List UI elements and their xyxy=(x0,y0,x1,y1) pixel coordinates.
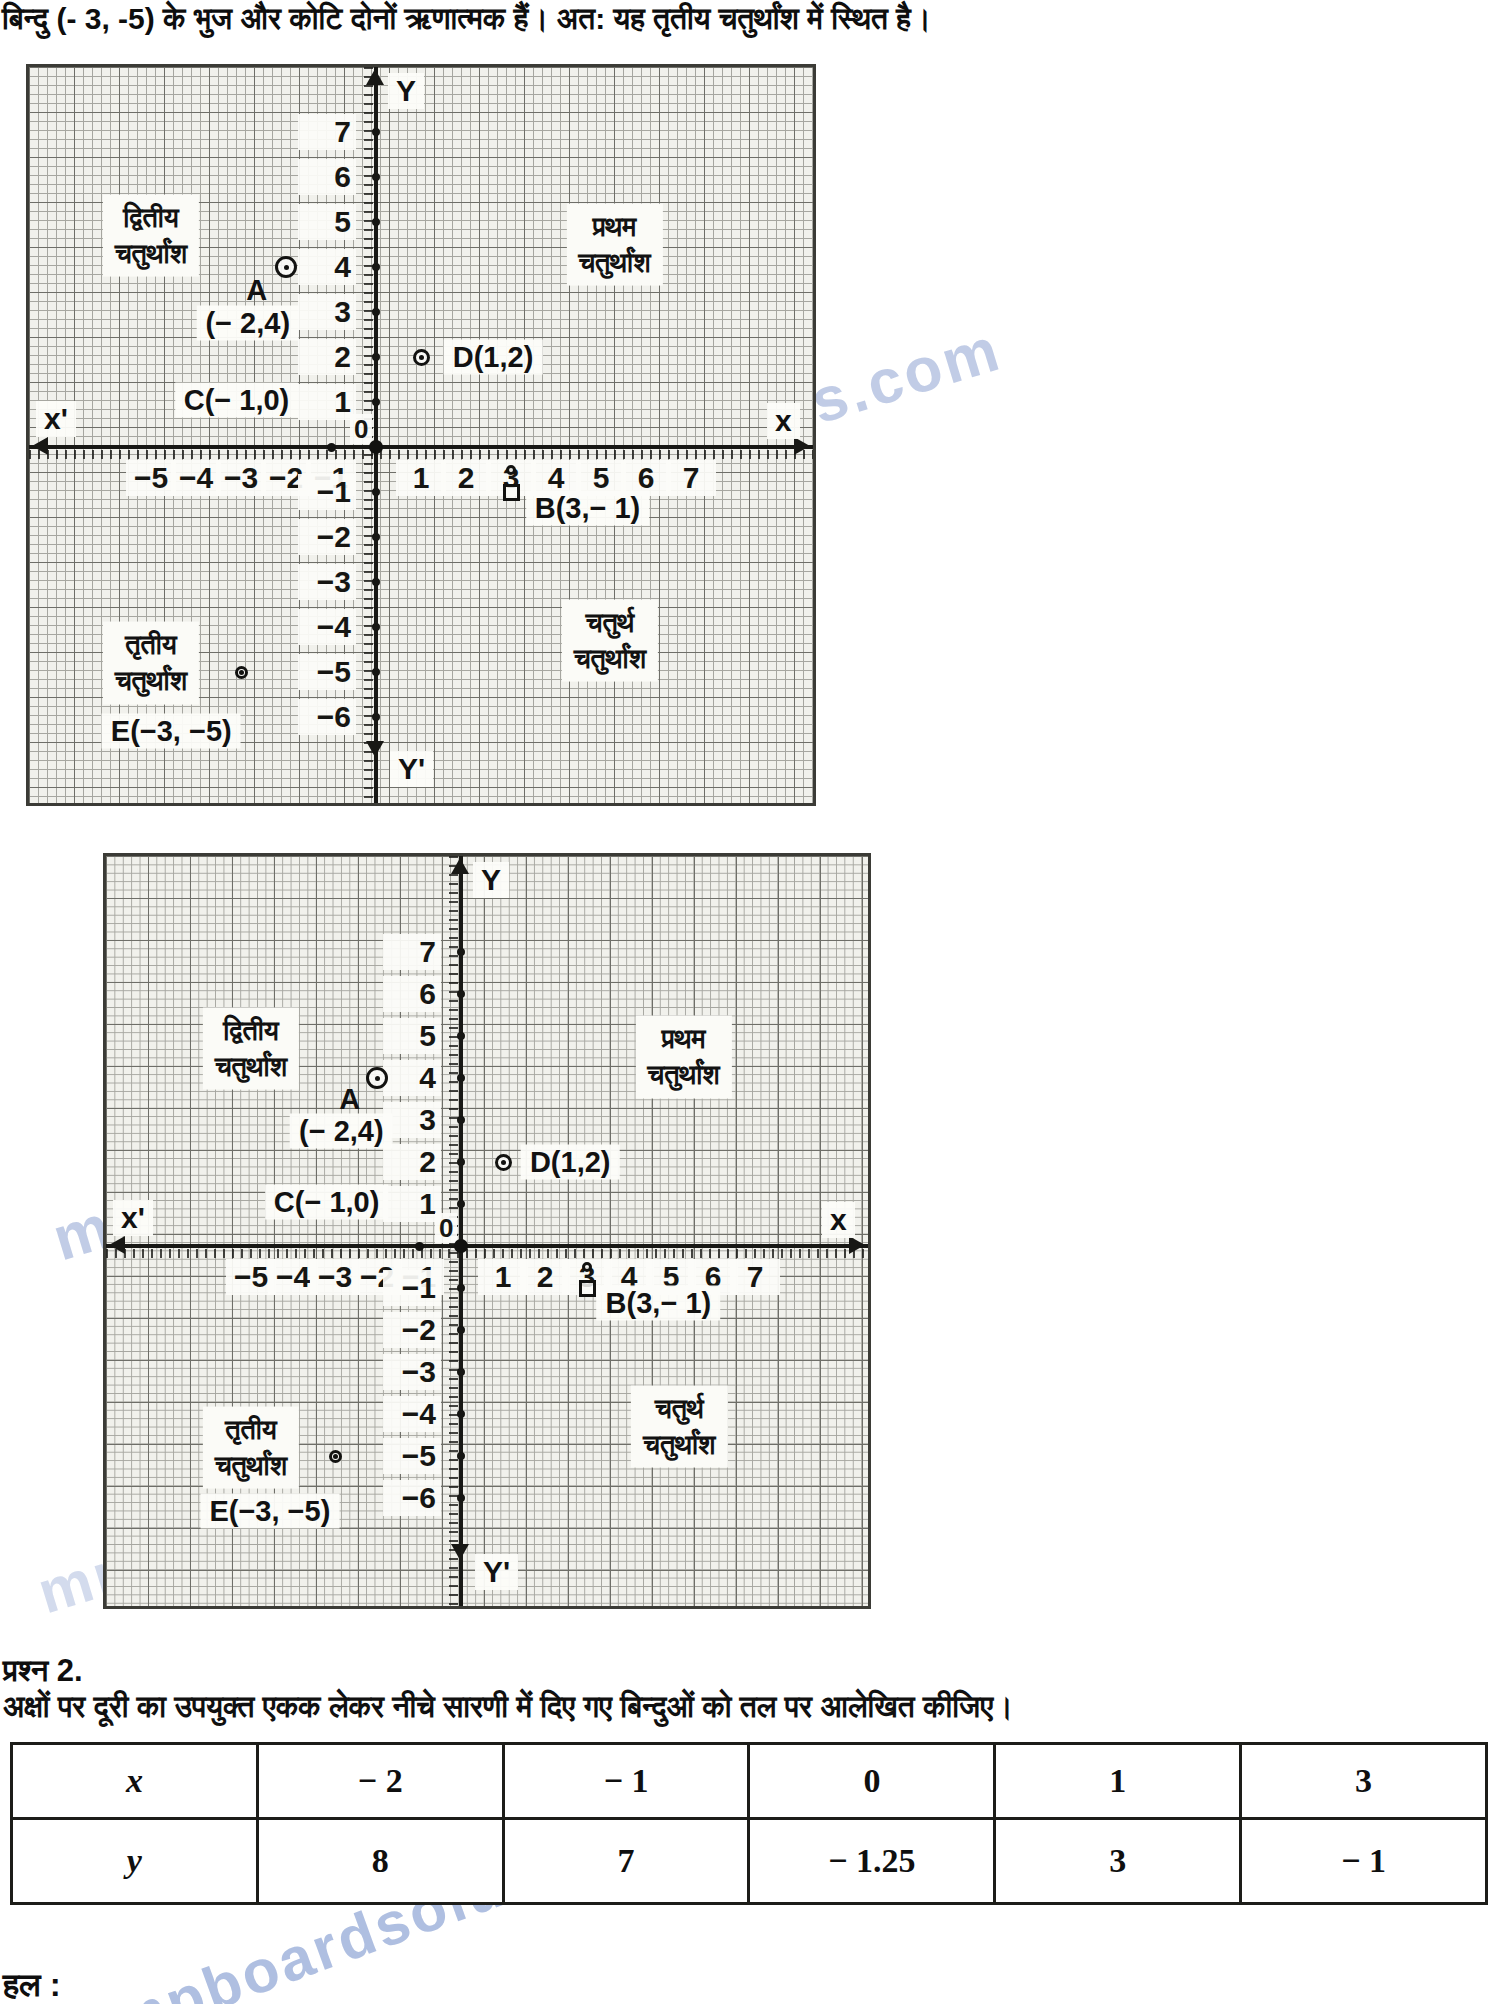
quadrant-label-line1: द्वितीय xyxy=(215,1012,287,1048)
solution-label: हल : xyxy=(3,1966,61,2004)
quadrant-label: चतुर्थचतुर्थांश xyxy=(562,599,658,682)
y-tick-label: 4 xyxy=(298,249,356,285)
quadrant-label-line1: प्रथम xyxy=(647,1021,719,1057)
y-tick-label: 2 xyxy=(298,339,356,375)
quadrant-label: तृतीयचतुर्थांश xyxy=(103,622,199,705)
point-C-marker xyxy=(327,443,336,452)
y-tick-label: 7 xyxy=(383,934,441,970)
x-axis-line xyxy=(106,1244,868,1248)
row-header-x: x xyxy=(12,1744,258,1819)
y-tick-dot xyxy=(457,1032,465,1040)
quadrant-label: तृतीयचतुर्थांश xyxy=(203,1406,299,1489)
y-tick-dot xyxy=(457,1452,465,1460)
y-tick-label: −4 xyxy=(298,609,356,645)
table-row-x: x− 2− 1013 xyxy=(12,1744,1487,1819)
x-tick-label: 7 xyxy=(666,460,716,496)
y-tick-dot xyxy=(372,128,380,136)
quadrant-label-line2: चतुर्थांश xyxy=(647,1057,719,1093)
point-label: E(−3, −5) xyxy=(102,713,241,748)
y-tick-dot xyxy=(457,1284,465,1292)
x-tick-label: −3 xyxy=(216,460,266,496)
y-axis-arrow-bottom xyxy=(451,1544,469,1560)
y-tick-label: −5 xyxy=(298,654,356,690)
point-label: D(1,2) xyxy=(444,340,543,375)
point-label: C(− 1,0) xyxy=(175,382,299,417)
point-A-marker xyxy=(275,256,297,278)
marker-center-dot xyxy=(239,670,244,675)
point-E-marker xyxy=(235,666,248,679)
y-tick-label: −1 xyxy=(383,1270,441,1306)
row-header-y: y xyxy=(12,1819,258,1904)
quadrant-label-line2: चतुर्थांश xyxy=(215,1049,287,1085)
x-axis-arrow-right xyxy=(794,437,810,455)
table-cell: 3 xyxy=(995,1819,1241,1904)
page: { "page": { "intro_line": "बिन्दु (- 3, … xyxy=(0,0,1499,2004)
y-tick-label-zero: 0 xyxy=(350,414,372,444)
quadrant-label-line2: चतुर्थांश xyxy=(115,663,187,699)
point-B-marker xyxy=(503,484,520,501)
table-cell: 7 xyxy=(503,1819,749,1904)
point-B-marker xyxy=(579,1280,596,1297)
point-label: E(−3, −5) xyxy=(200,1493,339,1528)
y-tick-label: 4 xyxy=(383,1060,441,1096)
intro-text: बिन्दु (- 3, -5) के भुज और कोटि दोनों ऋण… xyxy=(2,2,1182,37)
marker-center-dot xyxy=(375,1076,380,1081)
quadrant-label: प्रथमचतुर्थांश xyxy=(635,1016,731,1099)
y-axis-arrow-top xyxy=(451,858,469,874)
y-tick-dot xyxy=(372,533,380,541)
y-axis-label-top: Y xyxy=(473,862,509,898)
y-tick-dot xyxy=(372,668,380,676)
y-axis-label-top: Y xyxy=(388,73,424,109)
y-tick-dot xyxy=(372,218,380,226)
quadrant-label-line2: चतुर्थांश xyxy=(115,236,187,272)
y-tick-label: −3 xyxy=(383,1354,441,1390)
x-axis-arrow-left xyxy=(32,437,48,455)
point-label: A xyxy=(339,1083,360,1116)
y-tick-label: −4 xyxy=(383,1396,441,1432)
y-tick-dot xyxy=(457,990,465,998)
point-D-marker xyxy=(413,349,430,366)
quadrant-label: चतुर्थचतुर्थांश xyxy=(631,1385,727,1468)
y-tick-label: −1 xyxy=(298,474,356,510)
point-label: B(3,− 1) xyxy=(597,1285,721,1320)
y-tick-label: 5 xyxy=(298,204,356,240)
table-cell: − 1 xyxy=(503,1744,749,1819)
points-table-body: x− 2− 1013y87− 1.253− 1 xyxy=(12,1744,1487,1904)
quadrant-label: प्रथमचतुर्थांश xyxy=(566,203,662,286)
y-tick-label: 6 xyxy=(383,976,441,1012)
quadrant-label-line1: द्वितीय xyxy=(115,199,187,235)
y-tick-dot xyxy=(457,1410,465,1418)
x-axis-label-left: x' xyxy=(113,1200,153,1236)
y-tick-label: −3 xyxy=(298,564,356,600)
x-axis-arrow-right xyxy=(849,1236,865,1254)
quadrant-label-line1: चतुर्थ xyxy=(574,604,646,640)
y-tick-label: −6 xyxy=(298,699,356,735)
y-tick-label-zero: 0 xyxy=(435,1213,457,1243)
table-row-y: y87− 1.253− 1 xyxy=(12,1819,1487,1904)
marker-center-dot xyxy=(501,1160,506,1165)
y-tick-label: −5 xyxy=(383,1438,441,1474)
y-tick-dot xyxy=(372,713,380,721)
quadrant-label-line1: चतुर्थ xyxy=(643,1390,715,1426)
y-tick-dot xyxy=(457,1368,465,1376)
y-tick-dot xyxy=(372,623,380,631)
point-B-tick-marker xyxy=(506,465,516,475)
point-label: A xyxy=(246,273,267,306)
y-tick-label: −6 xyxy=(383,1480,441,1516)
point-O-marker xyxy=(454,1239,468,1253)
question-label: प्रश्न 2. xyxy=(3,1653,83,1689)
marker-center-dot xyxy=(333,1454,338,1459)
x-tick-label: 2 xyxy=(441,460,491,496)
point-A-marker xyxy=(366,1067,388,1089)
table-cell: 3 xyxy=(1241,1744,1487,1819)
y-axis-arrow-top xyxy=(366,69,384,85)
quadrant-label-line2: चतुर्थांश xyxy=(643,1427,715,1463)
y-tick-label: 2 xyxy=(383,1144,441,1180)
point-label: B(3,− 1) xyxy=(526,490,650,525)
question-text: अक्षों पर दूरी का उपयुक्त एकक लेकर नीचे … xyxy=(3,1690,1203,1725)
y-tick-dot xyxy=(372,263,380,271)
marker-center-dot xyxy=(284,265,289,270)
y-tick-dot xyxy=(372,173,380,181)
table-cell: 0 xyxy=(749,1744,995,1819)
x-axis-label-left: x' xyxy=(36,401,76,437)
quadrant-label-line1: तृतीय xyxy=(215,1411,287,1447)
y-tick-dot xyxy=(372,353,380,361)
quadrant-label: द्वितीयचतुर्थांश xyxy=(203,1007,299,1090)
point-C-marker xyxy=(415,1242,424,1251)
x-tick-label: −4 xyxy=(171,460,221,496)
x-axis-label-right: x xyxy=(767,403,800,439)
marker-center-dot xyxy=(419,355,424,360)
point-label: (− 2,4) xyxy=(196,306,299,341)
y-axis-label-bottom: Y' xyxy=(475,1554,518,1590)
x-tick-label: 7 xyxy=(730,1259,780,1295)
point-O-marker xyxy=(369,440,383,454)
y-tick-label: 1 xyxy=(298,384,356,420)
points-table: x− 2− 1013y87− 1.253− 1 xyxy=(10,1742,1488,1905)
y-tick-label: −2 xyxy=(383,1312,441,1348)
quadrant-label: द्वितीयचतुर्थांश xyxy=(103,194,199,277)
x-axis-minor-ticks xyxy=(29,450,813,459)
x-tick-label: −5 xyxy=(126,460,176,496)
table-cell: − 1.25 xyxy=(749,1819,995,1904)
quadrant-label-line1: तृतीय xyxy=(115,627,187,663)
y-tick-dot xyxy=(372,308,380,316)
x-axis-label-right: x xyxy=(822,1202,855,1238)
table-cell: 1 xyxy=(995,1744,1241,1819)
y-tick-dot xyxy=(457,1074,465,1082)
point-D-marker xyxy=(495,1154,512,1171)
x-axis-arrow-left xyxy=(109,1236,125,1254)
y-tick-label: 1 xyxy=(383,1186,441,1222)
table-cell: − 1 xyxy=(1241,1819,1487,1904)
x-axis-minor-ticks xyxy=(106,1249,868,1258)
coordinate-plane-figure-1: YY'x'x−5−4−3−2−1123456776543210−1−2−3−4−… xyxy=(26,64,816,806)
table-cell: − 2 xyxy=(257,1744,503,1819)
x-axis-line xyxy=(29,445,813,449)
y-tick-dot xyxy=(457,1200,465,1208)
table-cell: 8 xyxy=(257,1819,503,1904)
quadrant-label-line2: चतुर्थांश xyxy=(578,245,650,281)
quadrant-label-line2: चतुर्थांश xyxy=(574,641,646,677)
y-tick-label: 7 xyxy=(298,114,356,150)
quadrant-label-line2: चतुर्थांश xyxy=(215,1448,287,1484)
y-tick-dot xyxy=(457,1116,465,1124)
y-tick-dot xyxy=(372,578,380,586)
y-tick-dot xyxy=(457,1158,465,1166)
point-label: (− 2,4) xyxy=(290,1113,393,1148)
y-axis-label-bottom: Y' xyxy=(390,751,433,787)
y-tick-label: 6 xyxy=(298,159,356,195)
y-axis-arrow-bottom xyxy=(366,741,384,757)
y-tick-dot xyxy=(372,488,380,496)
point-B-tick-marker xyxy=(582,1262,592,1272)
y-tick-dot xyxy=(457,948,465,956)
y-tick-dot xyxy=(372,398,380,406)
y-tick-dot xyxy=(457,1326,465,1334)
point-label: C(− 1,0) xyxy=(265,1184,389,1219)
point-label: D(1,2) xyxy=(521,1145,620,1180)
x-tick-label: 1 xyxy=(396,460,446,496)
y-tick-label: 5 xyxy=(383,1018,441,1054)
quadrant-label-line1: प्रथम xyxy=(578,208,650,244)
y-tick-dot xyxy=(457,1494,465,1502)
coordinate-plane-figure-2: YY'x'x−5−4−3−2−1123456776543210−1−2−3−4−… xyxy=(103,853,871,1609)
y-tick-label: 3 xyxy=(298,294,356,330)
y-tick-label: −2 xyxy=(298,519,356,555)
point-E-marker xyxy=(329,1450,342,1463)
